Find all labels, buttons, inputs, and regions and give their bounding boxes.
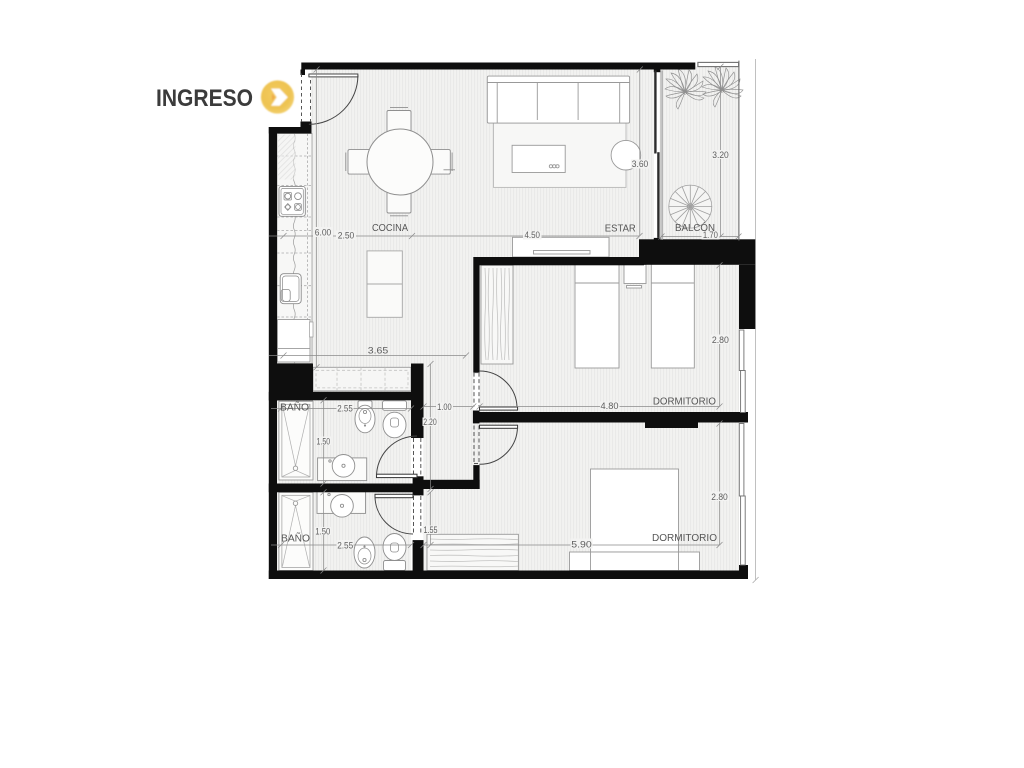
svg-text:3.65: 3.65 xyxy=(368,345,389,355)
svg-text:2.55: 2.55 xyxy=(337,403,353,413)
svg-text:2.55: 2.55 xyxy=(337,540,353,550)
svg-text:DORMITORIO: DORMITORIO xyxy=(652,533,717,544)
svg-text:2.20: 2.20 xyxy=(423,417,437,427)
svg-text:BALCÓN: BALCÓN xyxy=(675,223,715,234)
svg-text:4.50: 4.50 xyxy=(524,230,540,240)
svg-text:2.80: 2.80 xyxy=(712,335,729,345)
svg-text:BAÑO: BAÑO xyxy=(281,533,310,544)
svg-text:1.50: 1.50 xyxy=(317,436,331,446)
svg-text:COCINA: COCINA xyxy=(372,223,408,234)
svg-text:ESTAR: ESTAR xyxy=(605,224,636,235)
svg-text:2.80: 2.80 xyxy=(711,492,728,502)
svg-text:3.60: 3.60 xyxy=(632,159,649,169)
svg-text:5.90: 5.90 xyxy=(571,540,592,550)
svg-text:4.80: 4.80 xyxy=(601,401,619,411)
svg-text:DORMITORIO: DORMITORIO xyxy=(653,397,716,408)
svg-text:3.20: 3.20 xyxy=(712,150,729,160)
svg-text:1.55: 1.55 xyxy=(424,525,438,535)
svg-text:2.50: 2.50 xyxy=(338,231,355,241)
svg-text:6.00: 6.00 xyxy=(315,228,332,238)
svg-text:1.50: 1.50 xyxy=(315,526,330,536)
svg-text:1.00: 1.00 xyxy=(437,402,452,412)
svg-text:BAÑO: BAÑO xyxy=(280,402,309,413)
svg-text:INGRESO: INGRESO xyxy=(156,85,253,112)
